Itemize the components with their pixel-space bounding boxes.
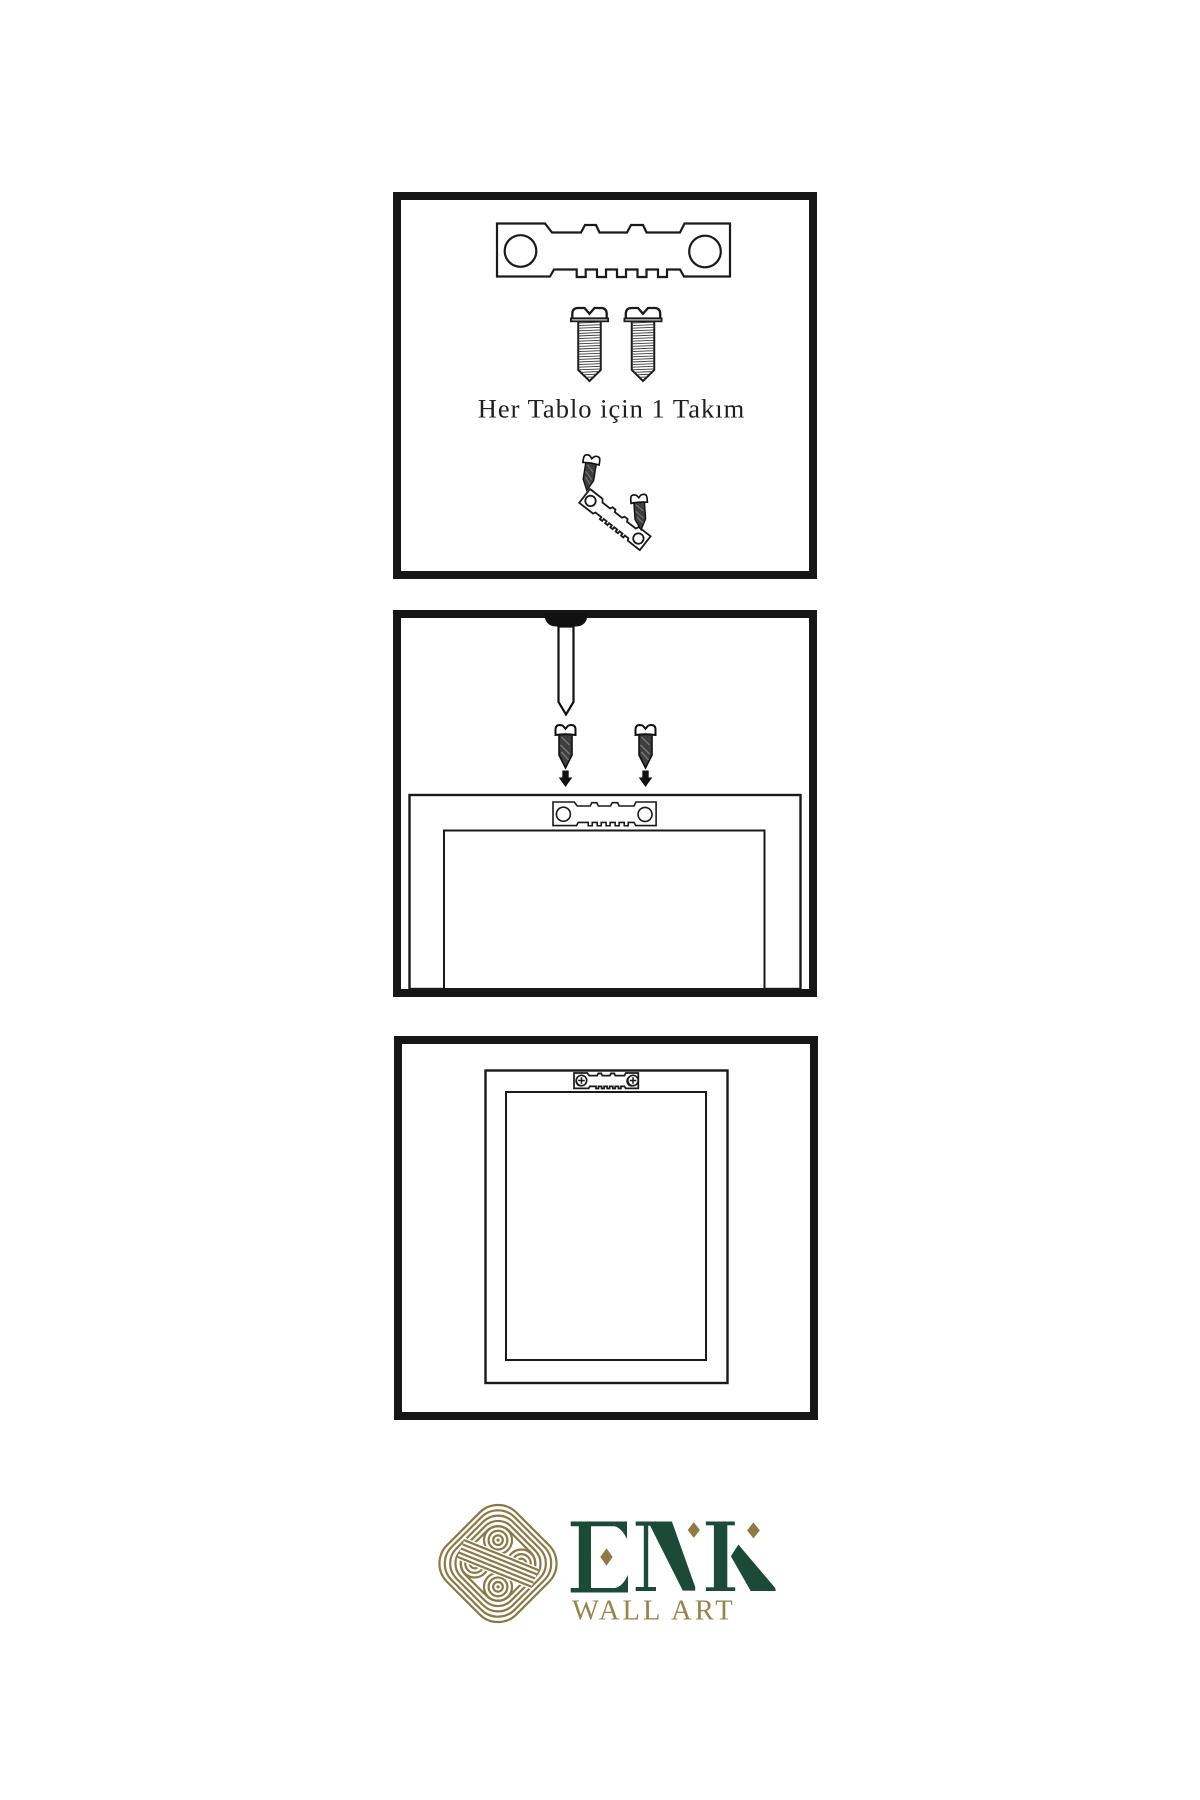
svg-text:WALL ART: WALL ART <box>572 1596 736 1627</box>
svg-text:Her Tablo için 1 Takım: Her Tablo için 1 Takım <box>478 394 746 424</box>
